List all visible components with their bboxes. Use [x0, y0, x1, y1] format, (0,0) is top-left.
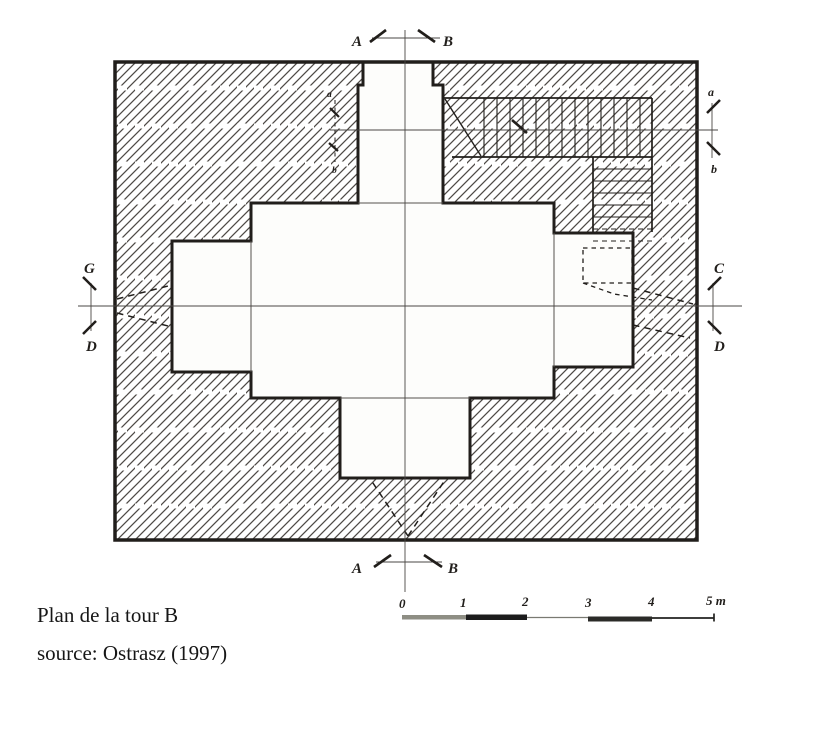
scale-tick-2: 2	[521, 594, 529, 609]
section-arrow-ticks	[374, 555, 442, 567]
section-arrow-ticks	[83, 277, 96, 334]
marker-a-wall: a	[327, 90, 332, 100]
caption-source: source: Ostrasz (1997)	[37, 641, 227, 665]
tower-plan-drawing: A B A B a b C D G D a b 0 1 2	[0, 0, 827, 748]
caption: Plan de la tour B source: Ostrasz (1997)	[37, 603, 227, 665]
axis-marker-cd-right: C D	[708, 261, 725, 355]
scale-segment-4-5	[652, 614, 714, 622]
scale-segment-3-4	[588, 617, 652, 622]
axis-marker-gd-left: G D	[83, 261, 97, 355]
marker-D-left: D	[85, 339, 97, 355]
section-marker-ab-top: A B	[351, 30, 453, 50]
scale-segment-0-1	[402, 615, 466, 620]
section-marker-ab-bottom: A B	[351, 555, 458, 577]
scale-tick-4: 4	[647, 594, 655, 609]
scale-tick-3: 3	[584, 595, 592, 610]
marker-b-right: b	[711, 162, 717, 176]
caption-title: Plan de la tour B	[37, 603, 178, 627]
marker-a-right: a	[708, 85, 714, 99]
scanned-figure-page: A B A B a b C D G D a b 0 1 2	[0, 0, 827, 748]
scale-segment-1-2	[466, 615, 527, 621]
section-marker-ab-right: a b	[707, 85, 720, 176]
marker-D-right: D	[713, 339, 725, 355]
scale-tick-0: 0	[399, 596, 406, 611]
marker-C-right: C	[714, 261, 725, 277]
marker-b-wall: b	[332, 166, 337, 176]
scale-bar: 0 1 2 3 4 5 m	[399, 593, 726, 622]
marker-A-top: A	[351, 34, 362, 50]
marker-A-bottom: A	[351, 561, 362, 577]
section-arrow-ticks	[370, 30, 435, 42]
marker-B-top: B	[442, 34, 453, 50]
scale-tick-5m: 5 m	[706, 593, 726, 608]
section-arrow-ticks	[707, 100, 720, 155]
section-arrow-ticks	[708, 277, 721, 334]
scale-tick-1: 1	[460, 595, 467, 610]
marker-G-left: G	[84, 261, 95, 277]
marker-B-bottom: B	[447, 561, 458, 577]
